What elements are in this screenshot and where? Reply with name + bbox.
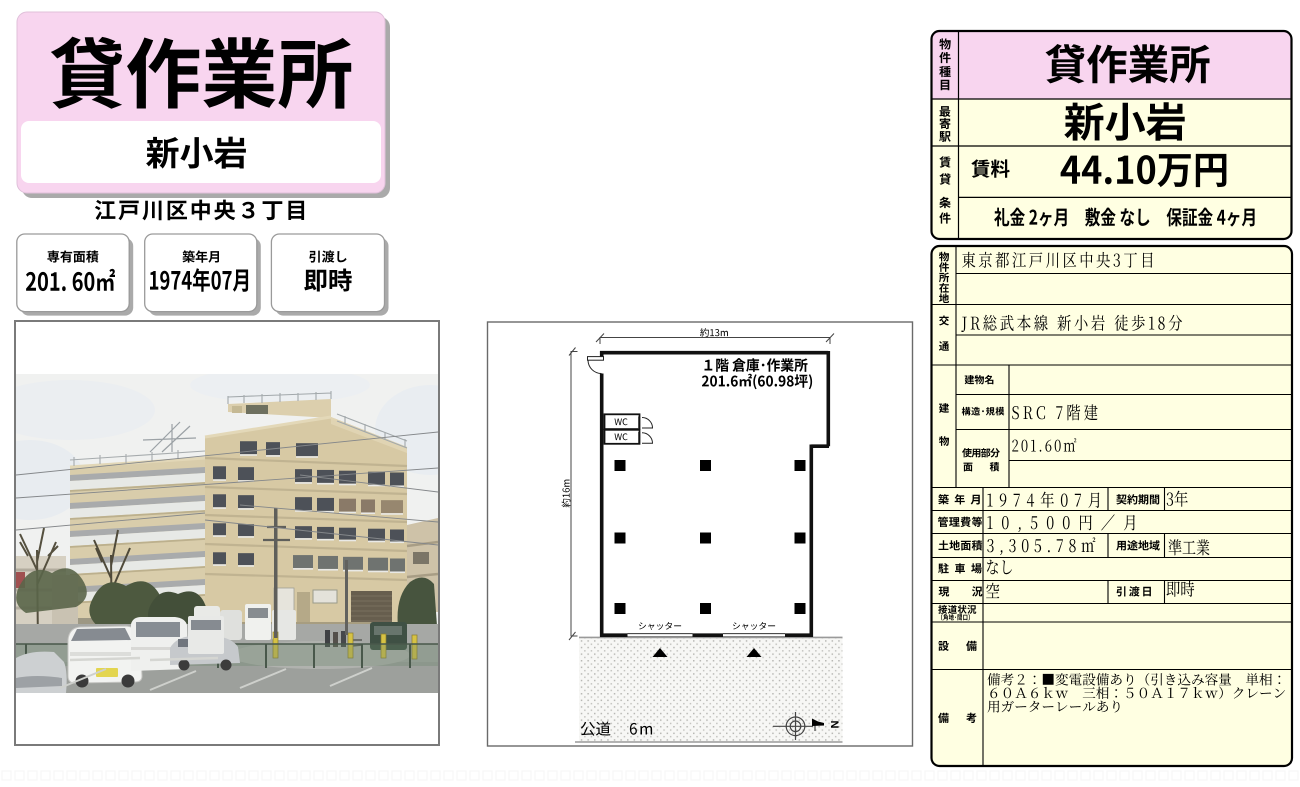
svg-text:N: N: [828, 721, 840, 729]
